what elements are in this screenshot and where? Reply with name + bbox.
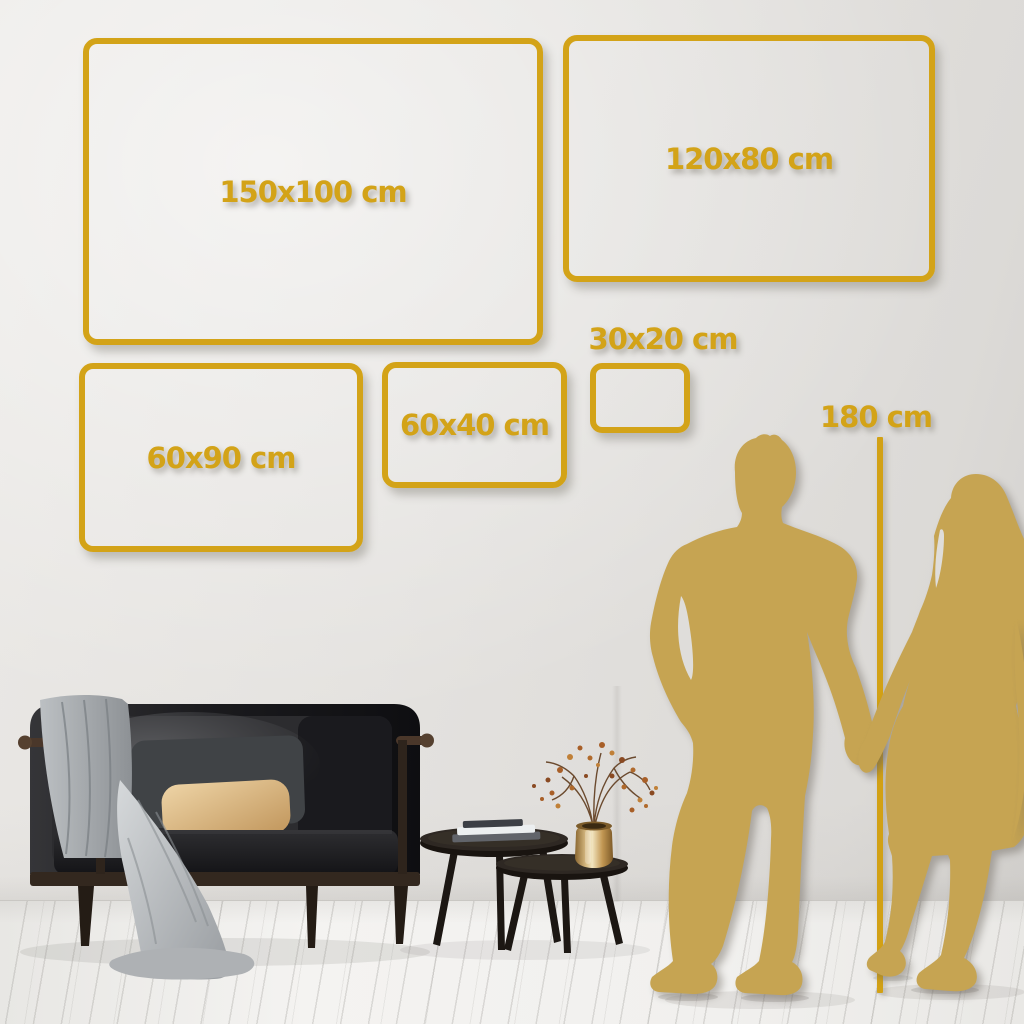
size-frame-120x80: 120x80 cm <box>563 35 935 282</box>
person-height-label: 180 cm <box>806 400 946 434</box>
wall-base-shadow <box>0 876 1024 900</box>
size-label-120x80: 120x80 cm <box>665 142 833 176</box>
size-frame-150x100: 150x100 cm <box>83 38 543 345</box>
wood-floor <box>0 900 1024 1024</box>
size-frame-60x90: 60x90 cm <box>79 363 363 552</box>
size-frame-30x20 <box>590 363 690 433</box>
size-label-150x100: 150x100 cm <box>219 175 406 209</box>
size-label-30x20: 30x20 cm <box>575 322 751 356</box>
size-label-60x40: 60x40 cm <box>400 408 549 442</box>
canvas-size-guide: 150x100 cm 120x80 cm 60x90 cm 60x40 cm 3… <box>0 0 1024 1024</box>
wall-corner-shadow <box>612 686 622 902</box>
size-label-60x90: 60x90 cm <box>147 441 296 475</box>
size-frame-60x40: 60x40 cm <box>382 362 567 488</box>
